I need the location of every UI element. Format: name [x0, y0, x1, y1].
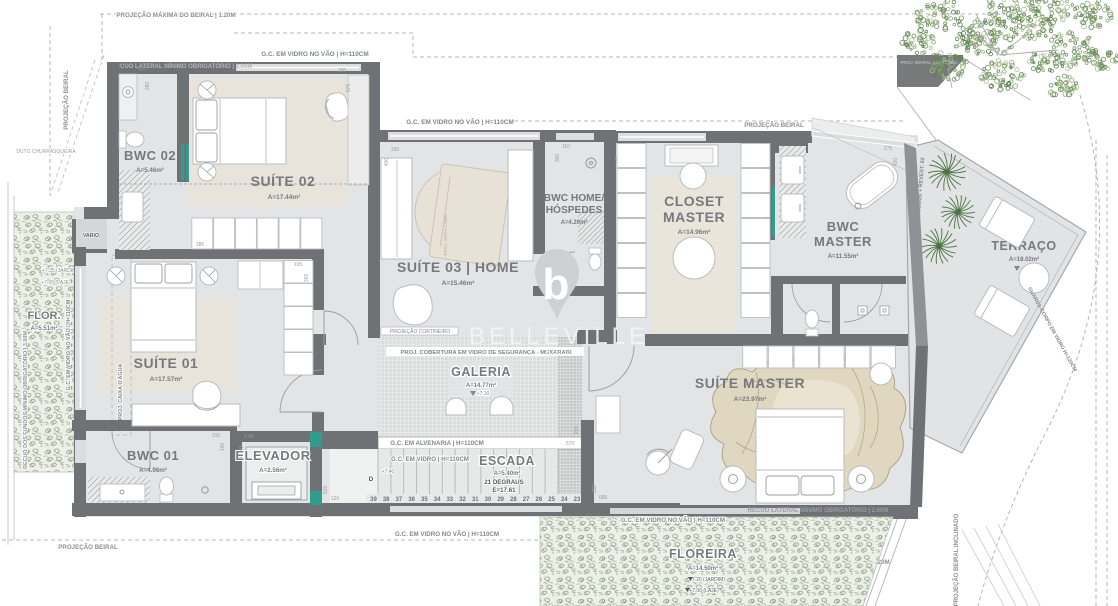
svg-text:+7.05 (LAJE): +7.05 (LAJE) [41, 280, 71, 286]
svg-text:26: 26 [536, 497, 543, 503]
svg-text:+7.40: +7.40 [382, 469, 395, 475]
svg-text:110: 110 [562, 144, 570, 150]
svg-text:A=17.44m²: A=17.44m² [268, 194, 302, 201]
svg-text:PROJEÇÃO BEIRAL INCLINADO: PROJEÇÃO BEIRAL INCLINADO [953, 513, 960, 606]
svg-text:+7.35 (JARDIM): +7.35 (JARDIM) [42, 268, 78, 274]
svg-text:A=14.77m²: A=14.77m² [466, 382, 496, 389]
svg-text:21 DEGRAUS: 21 DEGRAUS [484, 479, 524, 486]
svg-text:23: 23 [574, 497, 581, 503]
svg-text:PROJEÇÃO BEIRAL: PROJEÇÃO BEIRAL [63, 70, 70, 130]
svg-text:38: 38 [383, 497, 390, 503]
svg-text:350: 350 [592, 485, 598, 494]
svg-text:G.C. EM VIDRO NO VÃO | H=110CM: G.C. EM VIDRO NO VÃO | H=110CM [261, 49, 368, 58]
svg-text:RECUO LATERAL MÍNIMO OBRIGATÓR: RECUO LATERAL MÍNIMO OBRIGATÓRIO | 2.00M [748, 506, 889, 514]
svg-text:A=5.40m²: A=5.40m² [494, 470, 521, 477]
svg-text:G.C. EM VIDRO NO VÃO | H=110CM: G.C. EM VIDRO NO VÃO | H=110CM [406, 117, 513, 126]
svg-text:G.C. EM ALVENARIA | H=110CM: G.C. EM ALVENARIA | H=110CM [390, 440, 483, 447]
svg-text:A=4.96m²: A=4.96m² [139, 467, 167, 474]
svg-text:PROJEÇÃO CORTINEIRO: PROJEÇÃO CORTINEIRO [390, 328, 450, 335]
svg-text:BWC 02: BWC 02 [124, 148, 176, 163]
svg-text:A=5.46m²: A=5.46m² [136, 167, 164, 174]
svg-text:ELEVADOR: ELEVADOR [235, 448, 310, 463]
svg-text:275: 275 [884, 146, 893, 152]
svg-text:400: 400 [384, 158, 390, 167]
svg-text:PROJ. SOFÁ CAMA: PROJ. SOFÁ CAMA [442, 214, 448, 255]
svg-text:A=14.96m²: A=14.96m² [678, 229, 712, 236]
svg-text:A=18.02m²: A=18.02m² [1009, 256, 1039, 263]
svg-text:310: 310 [212, 433, 221, 439]
svg-text:365: 365 [304, 274, 310, 283]
svg-text:575: 575 [346, 84, 352, 93]
svg-text:30: 30 [485, 497, 492, 503]
svg-text:35: 35 [421, 497, 428, 503]
svg-text:285: 285 [196, 242, 205, 248]
svg-text:GUARDA-CORPO EM VIDRO H=120CM: GUARDA-CORPO EM VIDRO H=120CM [1026, 286, 1078, 372]
svg-text:A=17.57m²: A=17.57m² [150, 376, 184, 383]
svg-text:220: 220 [574, 426, 580, 435]
svg-text:BWC: BWC [827, 219, 860, 234]
svg-text:390: 390 [145, 82, 151, 91]
svg-text:395: 395 [338, 68, 347, 74]
svg-text:D: D [369, 476, 374, 483]
svg-text:ESCADA: ESCADA [479, 454, 535, 468]
svg-text:28: 28 [510, 497, 517, 503]
svg-text:570: 570 [566, 441, 575, 447]
svg-text:G.C. EM VIDRO NO VÃO | H=110CM: G.C. EM VIDRO NO VÃO | H=110CM [621, 517, 725, 524]
svg-text:34: 34 [434, 497, 441, 503]
svg-text:MASTER: MASTER [814, 234, 872, 249]
svg-text:CLOSET: CLOSET [664, 193, 724, 209]
svg-text:E=17.61: E=17.61 [492, 487, 516, 494]
svg-text:PROJEÇÃO BEIRAL: PROJEÇÃO BEIRAL [58, 544, 118, 551]
svg-text:1.60: 1.60 [244, 434, 254, 440]
svg-text:BWC 01: BWC 01 [127, 448, 179, 463]
svg-text:A=4.20m²: A=4.20m² [561, 219, 588, 226]
svg-text:A=23.97m²: A=23.97m² [734, 396, 768, 403]
svg-text:29: 29 [497, 497, 504, 503]
svg-text:SUÍTE 02: SUÍTE 02 [251, 173, 316, 189]
svg-text:TERRAÇO: TERRAÇO [991, 239, 1056, 253]
svg-text:25: 25 [548, 497, 555, 503]
svg-text:31: 31 [472, 497, 479, 503]
svg-text:RECUO LATERAL MÍNIMO OBRIGATÓR: RECUO LATERAL MÍNIMO OBRIGATÓRIO | 2.00M [112, 62, 253, 70]
svg-text:27: 27 [523, 497, 530, 503]
svg-text:RECUO DOS FUNDOS MÍNIMO OBRIGA: RECUO DOS FUNDOS MÍNIMO OBRIGATÓRIO | 3.… [21, 331, 29, 469]
svg-text:+7.00 (LAJE): +7.00 (LAJE) [689, 588, 719, 594]
svg-text:GALERIA: GALERIA [451, 365, 511, 379]
svg-text:300: 300 [555, 154, 561, 163]
svg-text:FLOR.: FLOR. [28, 310, 61, 322]
svg-text:24: 24 [561, 497, 568, 503]
svg-text:PROJEÇÃO MÁXIMA DO BEIRAL | 1.: PROJEÇÃO MÁXIMA DO BEIRAL | 1.20M [116, 12, 235, 19]
svg-text:A=15.46m²: A=15.46m² [442, 280, 476, 287]
svg-text:BELLEVILLE: BELLEVILLE [469, 323, 649, 350]
svg-text:DUTO CHURRASQUEIRA: DUTO CHURRASQUEIRA [16, 149, 76, 155]
svg-text:IMÓVEIS: IMÓVEIS [529, 349, 590, 358]
svg-text:G.C. EM VIDRO NO VÃO | H=110CM: G.C. EM VIDRO NO VÃO | H=110CM [65, 299, 72, 390]
svg-text:A=11.55m²: A=11.55m² [828, 253, 859, 260]
svg-text:FLOREIRA: FLOREIRA [669, 547, 737, 561]
svg-text:A=14.50m²: A=14.50m² [688, 565, 718, 572]
svg-text:SUÍTE MASTER: SUÍTE MASTER [695, 375, 805, 391]
svg-text:32: 32 [459, 497, 466, 503]
svg-text:A=5.51m²: A=5.51m² [31, 325, 58, 332]
svg-text:b: b [543, 260, 570, 309]
svg-text:195: 195 [294, 262, 303, 268]
svg-text:HÓSPEDES: HÓSPEDES [546, 203, 603, 216]
svg-text:+7.20 (JARDIM): +7.20 (JARDIM) [689, 577, 725, 583]
svg-text:PROJEÇÃO BEIRAL: PROJEÇÃO BEIRAL [744, 122, 804, 129]
svg-text:120: 120 [331, 496, 340, 502]
svg-text:SUÍTE 01: SUÍTE 01 [134, 355, 199, 371]
svg-text:420: 420 [893, 158, 899, 167]
svg-text:515: 515 [323, 486, 329, 495]
svg-text:MASTER: MASTER [663, 209, 725, 225]
svg-text:685: 685 [599, 495, 608, 501]
svg-text:37: 37 [396, 497, 403, 503]
svg-text:G.C. EM VIDRO | H=110CM: G.C. EM VIDRO | H=110CM [391, 456, 469, 463]
svg-text:110: 110 [138, 66, 146, 72]
svg-text:36: 36 [408, 497, 415, 503]
svg-text:160: 160 [220, 443, 226, 452]
svg-text:39: 39 [370, 497, 377, 503]
svg-text:VARIO: VARIO [83, 233, 99, 239]
svg-text:G.C. EM VIDRO NO VÃO | H=110CM: G.C. EM VIDRO NO VÃO | H=110CM [395, 531, 499, 538]
svg-text:BWC HOME/: BWC HOME/ [544, 193, 605, 204]
svg-text:+7.10: +7.10 [477, 391, 490, 397]
svg-text:330: 330 [391, 147, 400, 153]
svg-text:33: 33 [446, 497, 453, 503]
svg-text:SUÍTE 03 | HOME: SUÍTE 03 | HOME [397, 259, 519, 275]
svg-text:A=2.56m²: A=2.56m² [259, 467, 287, 474]
svg-text:PROJ. CAIXA D'ÁGUA: PROJ. CAIXA D'ÁGUA [117, 364, 124, 421]
